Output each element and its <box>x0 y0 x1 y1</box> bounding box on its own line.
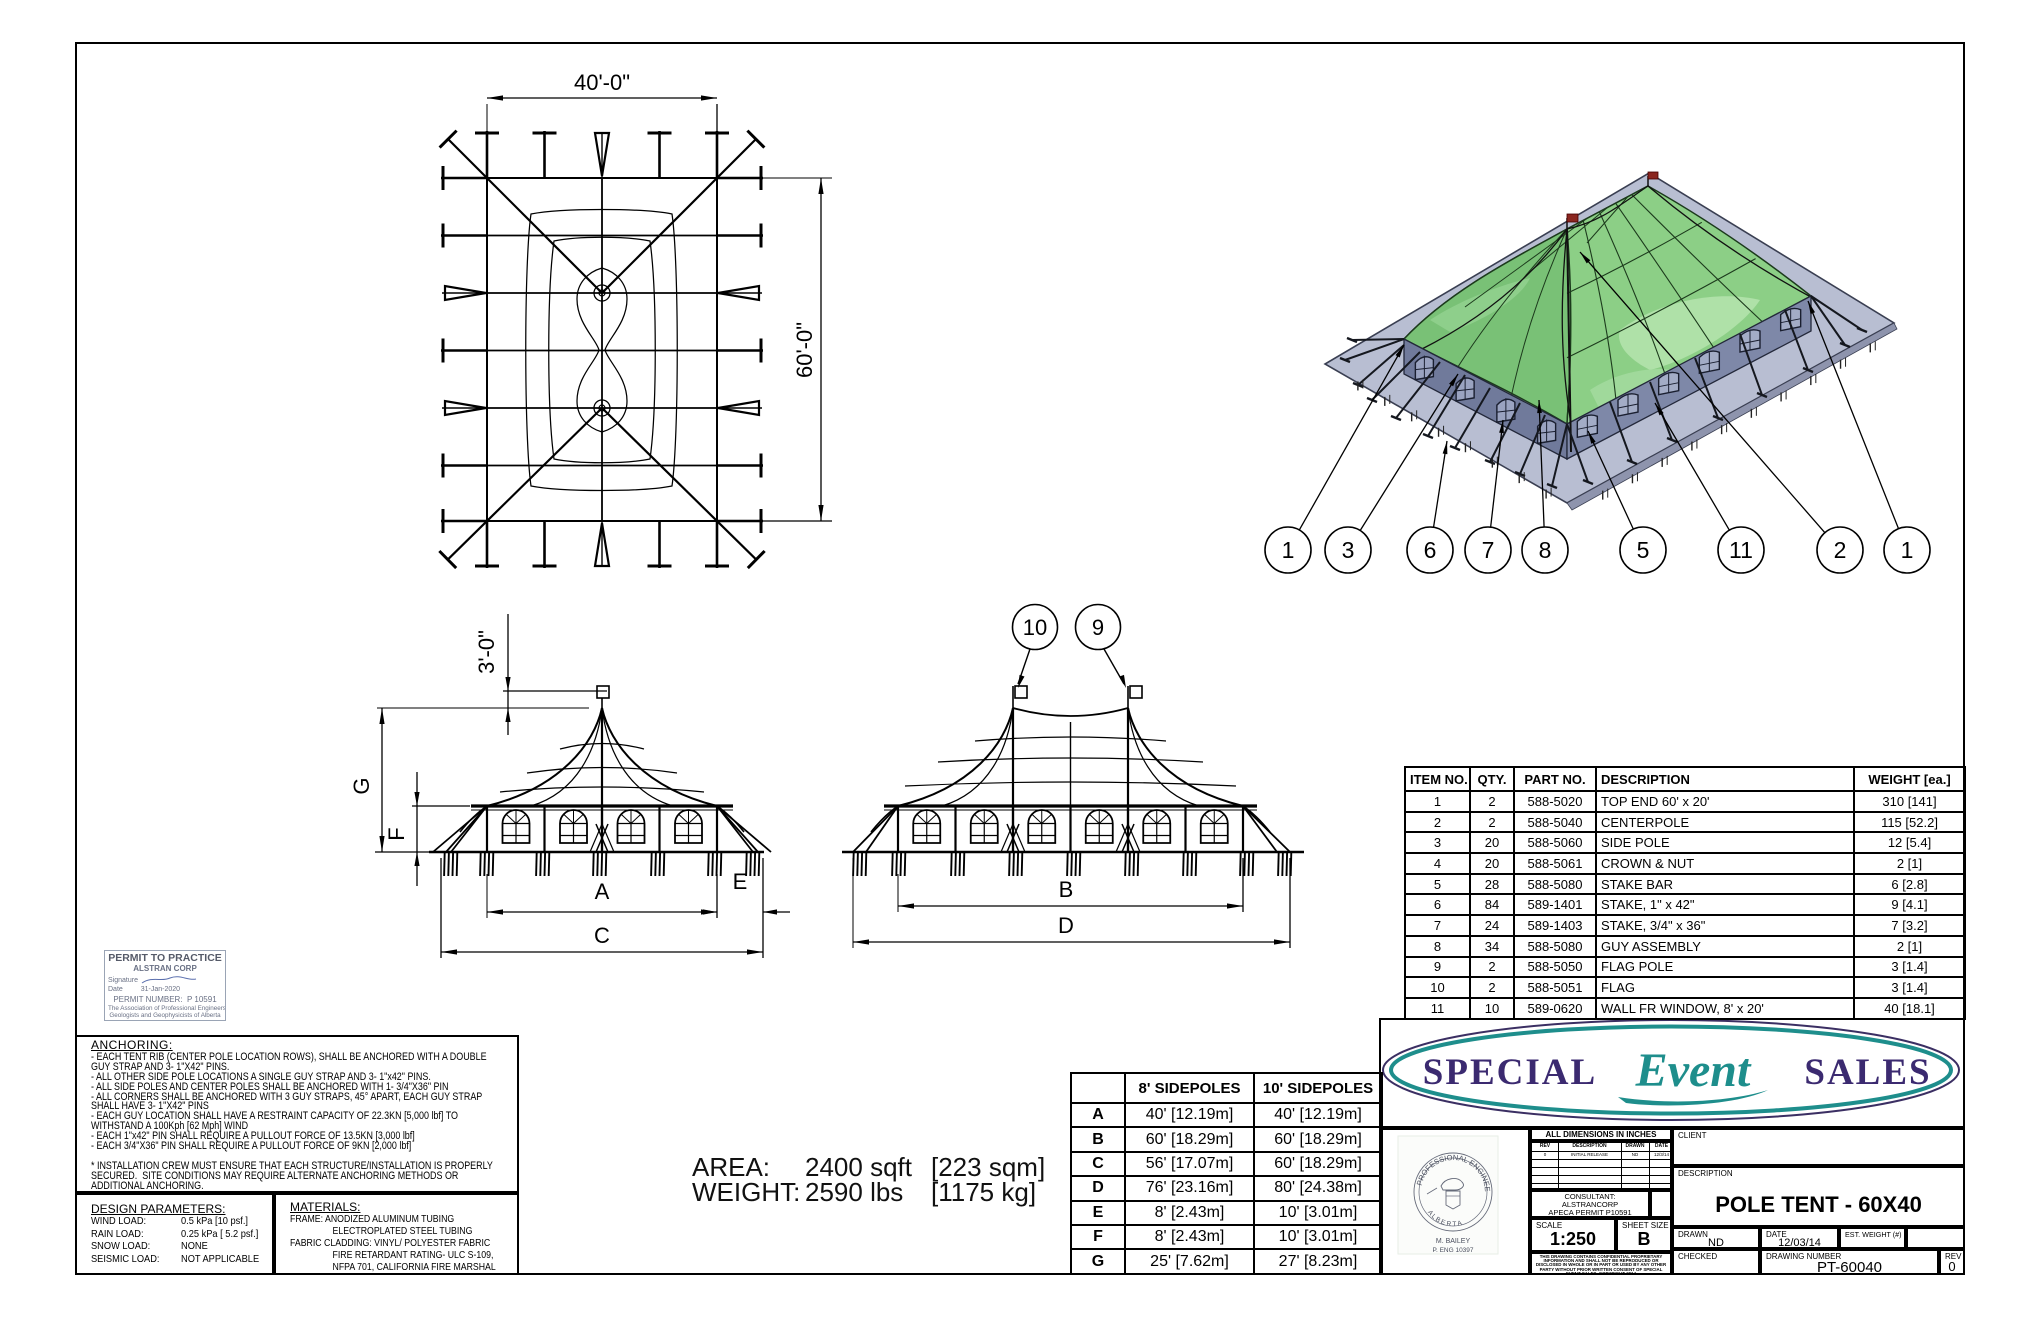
svg-text:C: C <box>594 923 610 948</box>
svg-text:9: 9 <box>1092 615 1104 640</box>
svg-text:E: E <box>733 869 748 894</box>
svg-text:3: 3 <box>1342 537 1355 563</box>
svg-text:SPECIAL: SPECIAL <box>1423 1052 1597 1093</box>
svg-text:6: 6 <box>1424 537 1437 563</box>
svg-text:F: F <box>384 827 409 840</box>
svg-text:A: A <box>595 879 610 904</box>
svg-text:7: 7 <box>1482 537 1495 563</box>
svg-text:Event: Event <box>1635 1044 1752 1097</box>
svg-text:G: G <box>349 777 374 794</box>
svg-text:3'-0": 3'-0" <box>474 630 499 674</box>
svg-text:1: 1 <box>1282 537 1295 563</box>
svg-text:1: 1 <box>1901 537 1914 563</box>
svg-text:B: B <box>1059 877 1074 902</box>
svg-text:D: D <box>1058 913 1074 938</box>
svg-text:5: 5 <box>1637 537 1650 563</box>
svg-text:40'-0": 40'-0" <box>574 70 630 95</box>
svg-text:60'-0": 60'-0" <box>792 322 817 378</box>
svg-text:SALES: SALES <box>1804 1052 1931 1093</box>
svg-text:10: 10 <box>1023 615 1047 640</box>
svg-text:2: 2 <box>1834 537 1847 563</box>
svg-text:8: 8 <box>1539 537 1552 563</box>
svg-text:11: 11 <box>1729 537 1753 563</box>
